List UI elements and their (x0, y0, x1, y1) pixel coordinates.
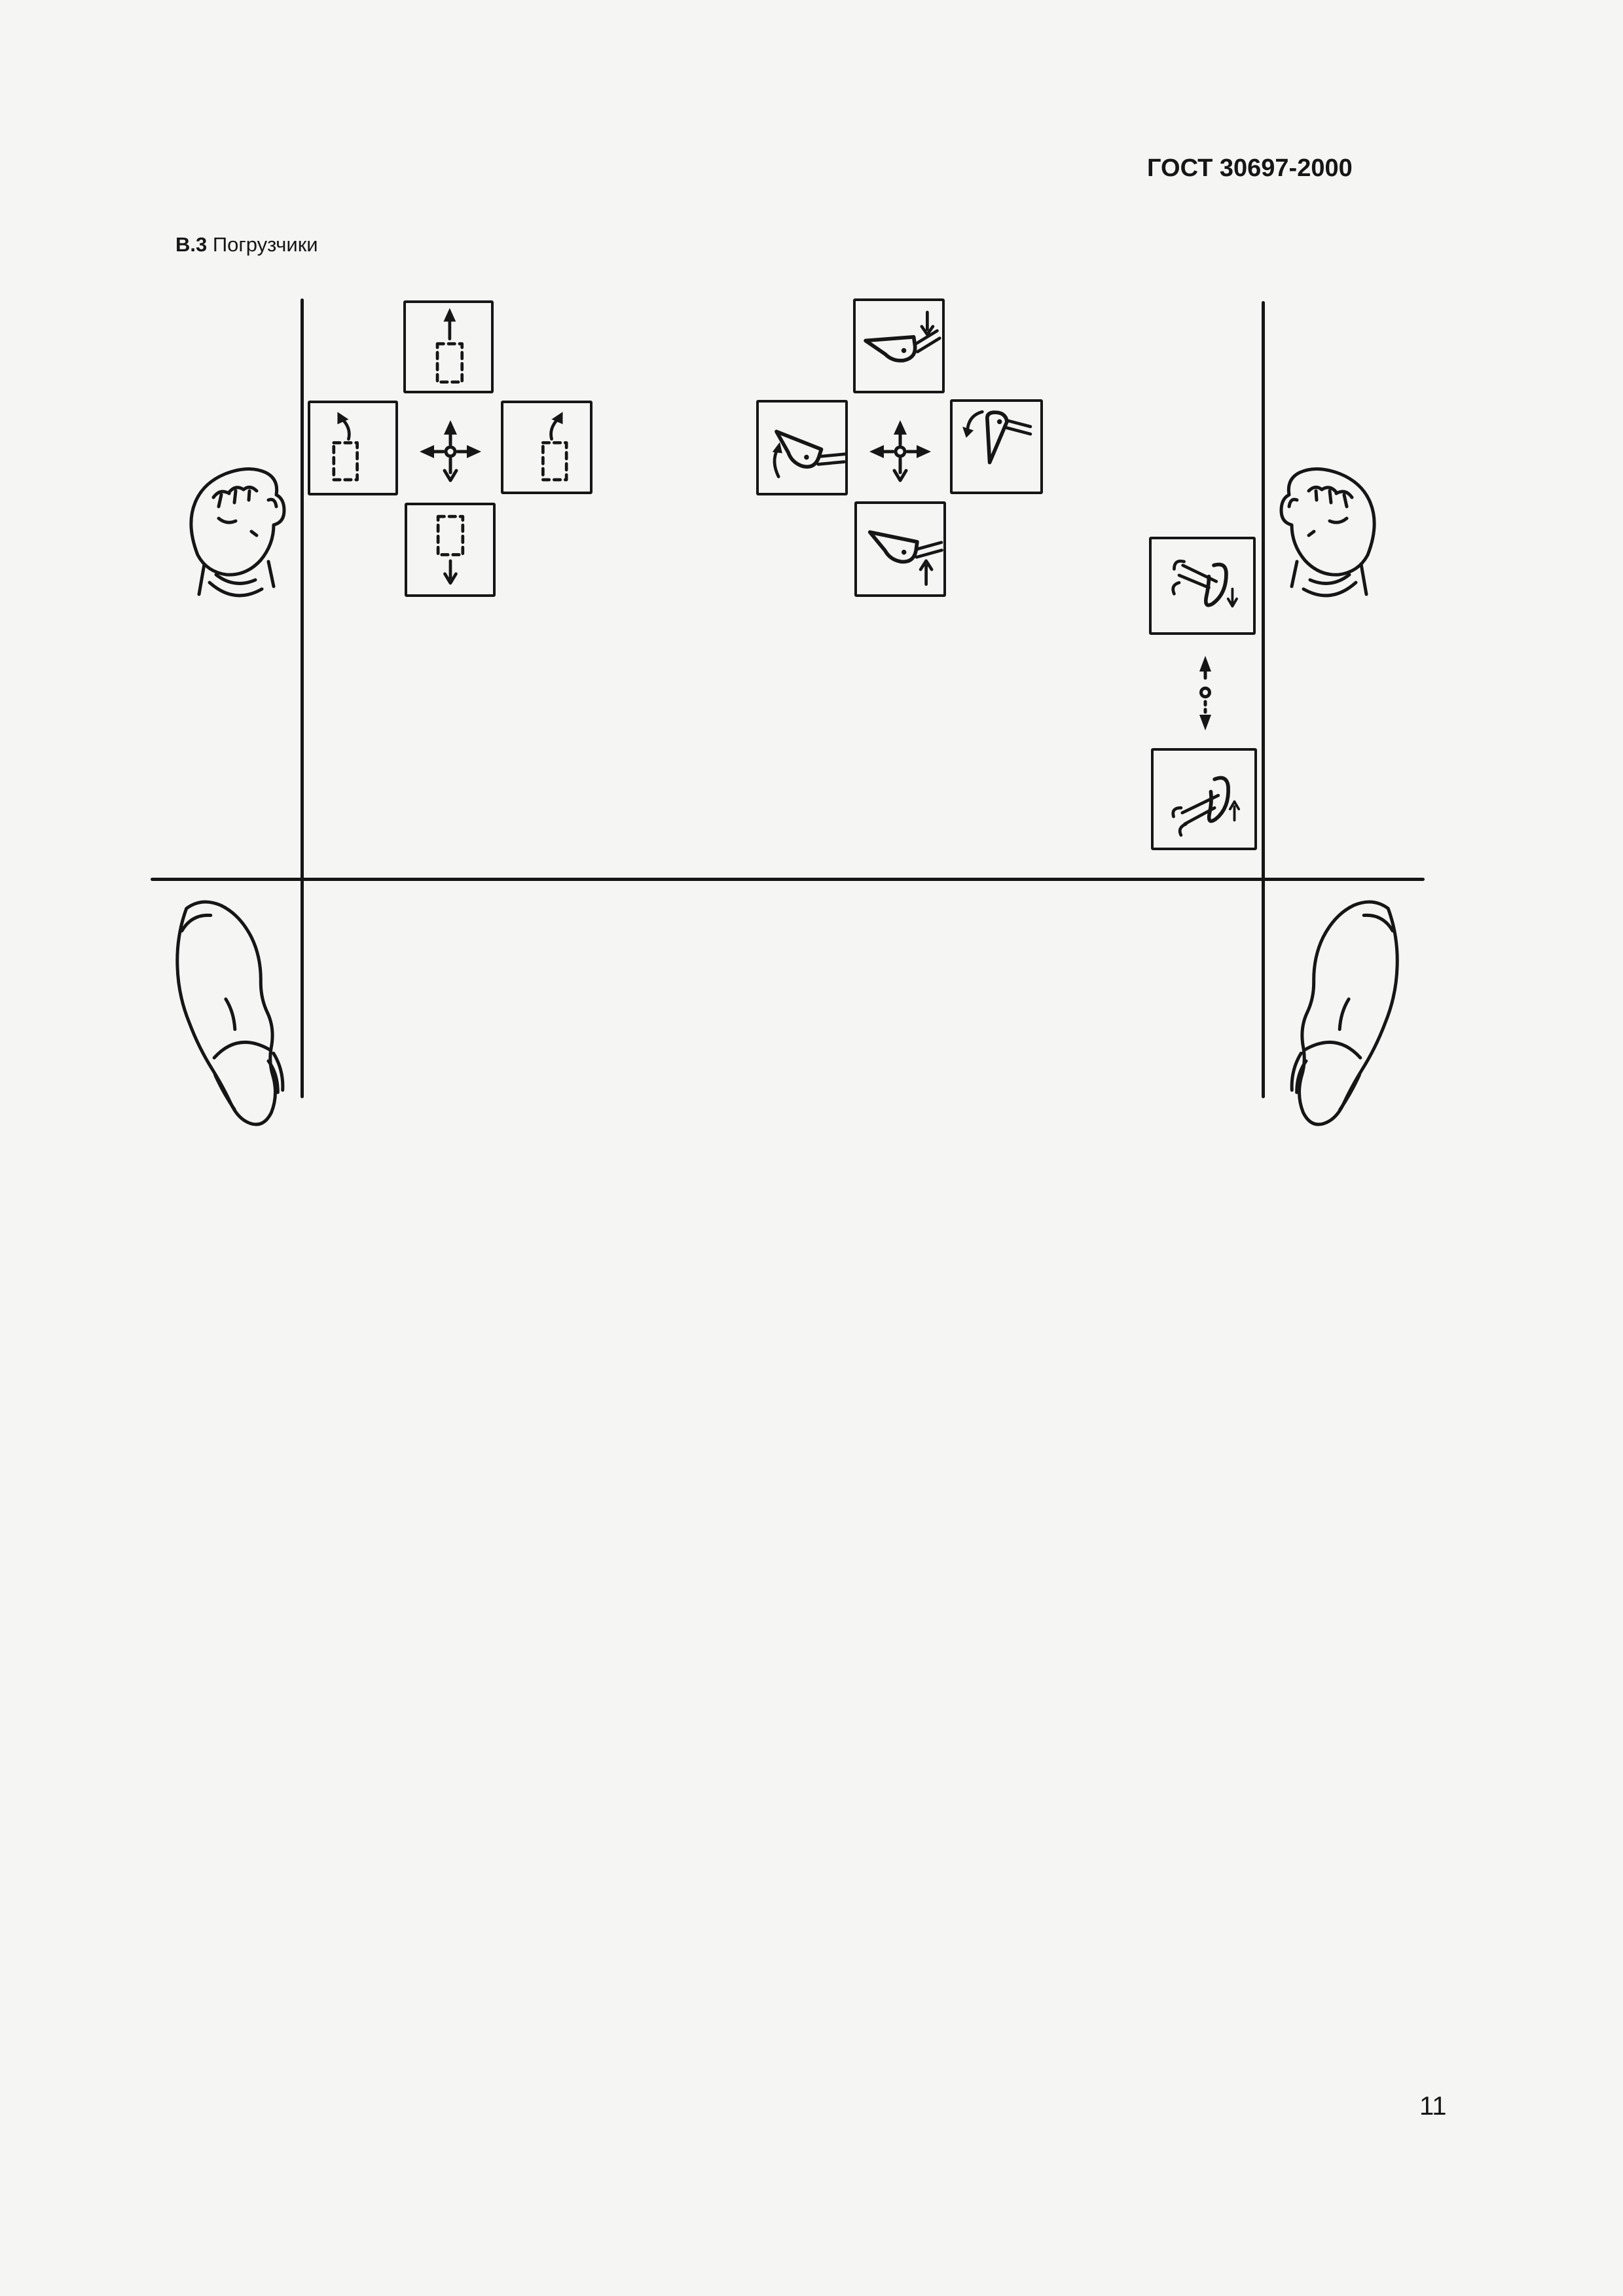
bucket-dump-icon (953, 402, 1040, 492)
dashed-rect-arrow-up-left-icon (310, 403, 395, 493)
dashed-rect-arrow-up-right-icon (503, 403, 590, 492)
two-way-vertical-arrow-icon (1186, 653, 1224, 733)
outrigger-box-bottom (1151, 748, 1257, 850)
right-boot (1251, 881, 1427, 1147)
bucket-tilt-back-icon (759, 403, 845, 493)
left-cluster-box-right (501, 401, 593, 494)
left-rail-line (301, 298, 304, 1098)
right-cluster-box-top (853, 298, 945, 393)
four-way-arrows-icon (864, 415, 936, 487)
doc-header: ГОСТ 30697-2000 (1147, 154, 1353, 183)
bucket-raise-icon (857, 504, 943, 594)
outrigger-lower-icon (1152, 539, 1253, 632)
dashed-rect-arrow-up-icon (406, 303, 491, 391)
right-rail-line (1262, 301, 1265, 1098)
outrigger-box-top (1149, 537, 1256, 635)
section-label: В.3 Погрузчики (175, 233, 318, 257)
page-number: 11 (1419, 2092, 1447, 2121)
section-title: Погрузчики (213, 233, 318, 256)
right-cluster-box-right (950, 399, 1043, 494)
document-page: ГОСТ 30697-2000 В.3 Погрузчики (0, 0, 1623, 2296)
section-number: В.3 (175, 233, 207, 256)
left-boot (147, 881, 323, 1147)
right-fist (1269, 427, 1390, 613)
left-cluster-box-top (403, 300, 494, 393)
dashed-rect-arrow-down-icon (407, 505, 493, 594)
bucket-lower-icon (856, 301, 942, 391)
outrigger-raise-icon (1154, 751, 1254, 848)
left-cluster-box-bottom (405, 503, 496, 597)
left-cluster-box-left (308, 401, 398, 495)
right-cluster-box-bottom (854, 501, 946, 597)
floor-line (151, 878, 1425, 881)
four-way-arrows-icon (414, 415, 486, 487)
left-fist (175, 427, 297, 613)
right-cluster-box-left (756, 400, 848, 495)
